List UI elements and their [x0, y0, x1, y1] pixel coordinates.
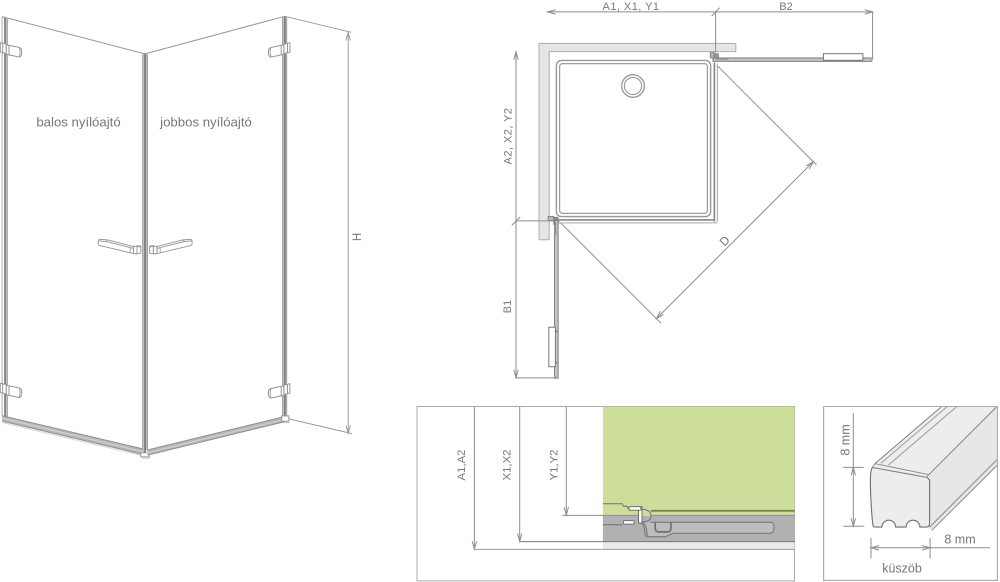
- svg-text:balos nyílóajtó: balos nyílóajtó: [36, 115, 120, 130]
- svg-text:B2: B2: [779, 1, 792, 13]
- svg-text:A1, X1, Y1: A1, X1, Y1: [603, 1, 660, 13]
- svg-text:küszöb: küszöb: [882, 562, 922, 576]
- svg-text:8 mm: 8 mm: [839, 424, 853, 455]
- svg-text:jobbos nyílóajtó: jobbos nyílóajtó: [159, 115, 252, 130]
- svg-text:D: D: [717, 233, 733, 249]
- svg-text:8 mm: 8 mm: [944, 533, 975, 547]
- svg-text:B1: B1: [502, 300, 514, 313]
- svg-text:Y1,Y2: Y1,Y2: [548, 449, 560, 480]
- svg-text:H: H: [352, 233, 364, 241]
- svg-text:A1,A2: A1,A2: [456, 449, 468, 480]
- svg-text:X1,X2: X1,X2: [502, 449, 514, 480]
- svg-text:A2, X2, Y2: A2, X2, Y2: [503, 108, 515, 165]
